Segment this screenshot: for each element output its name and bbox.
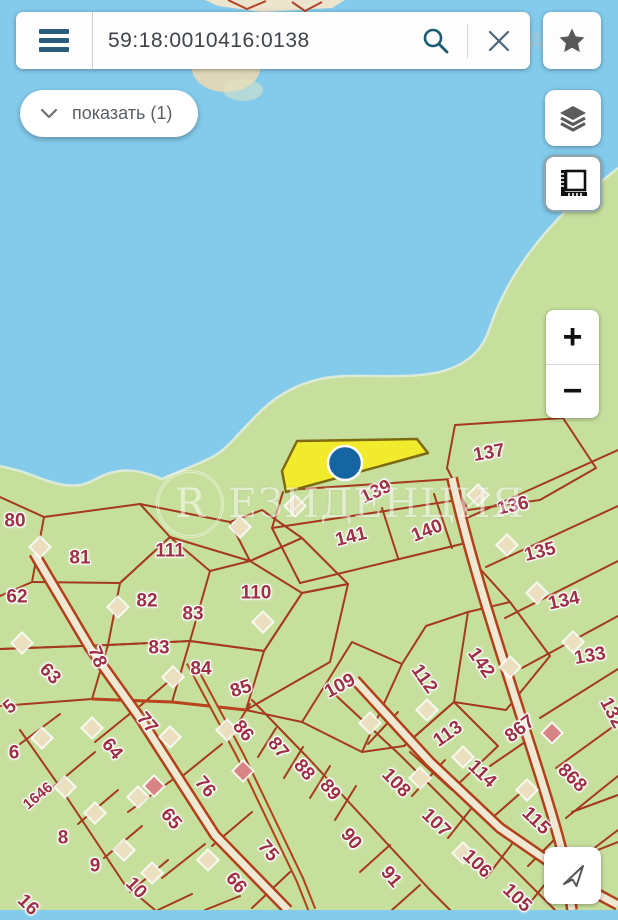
parcel-number: 84 — [190, 660, 211, 679]
locate-me-button[interactable] — [544, 847, 601, 904]
selected-parcel-marker[interactable] — [328, 446, 362, 480]
parcel-number: 133 — [573, 644, 608, 668]
parcel-number: 82 — [136, 592, 157, 611]
locate-arrow-icon — [557, 860, 589, 892]
show-results-label: показать (1) — [72, 103, 172, 124]
parcel-number: 110 — [241, 584, 272, 603]
zoom-out-button[interactable]: − — [546, 365, 599, 419]
star-icon — [556, 25, 588, 57]
parcel-number: 8 — [58, 829, 69, 848]
parcel-number: 80 — [4, 512, 25, 531]
app-screen: 8081621118283110838485786313914114013713… — [0, 0, 618, 910]
parcel-number: 6 — [9, 744, 20, 763]
measure-icon — [557, 168, 589, 200]
parcel-number: 81 — [69, 549, 90, 568]
close-icon — [486, 28, 512, 54]
clear-search-button[interactable] — [468, 12, 530, 69]
zoom-in-button[interactable]: + — [546, 310, 599, 364]
menu-icon — [39, 29, 69, 52]
chevron-down-icon — [40, 108, 58, 119]
parcel-number: 137 — [472, 441, 507, 465]
show-results-button[interactable]: показать (1) — [20, 90, 198, 137]
favorites-button[interactable] — [543, 12, 601, 69]
layers-button[interactable] — [545, 90, 601, 146]
search-input[interactable]: 59:18:0010416:0138 — [93, 29, 405, 53]
zoom-control: + − — [546, 310, 599, 418]
parcel-number: 83 — [182, 605, 203, 624]
parcel-number: 9 — [90, 857, 101, 876]
search-icon — [421, 26, 451, 56]
menu-button[interactable] — [16, 12, 92, 69]
search-button[interactable] — [405, 12, 467, 69]
parcel-number: 62 — [6, 588, 27, 607]
parcel-number: 111 — [155, 542, 185, 561]
measure-button[interactable] — [544, 155, 602, 212]
layers-icon — [557, 102, 589, 134]
search-bar: 59:18:0010416:0138 — [16, 12, 530, 69]
parcel-number: 83 — [148, 639, 169, 658]
